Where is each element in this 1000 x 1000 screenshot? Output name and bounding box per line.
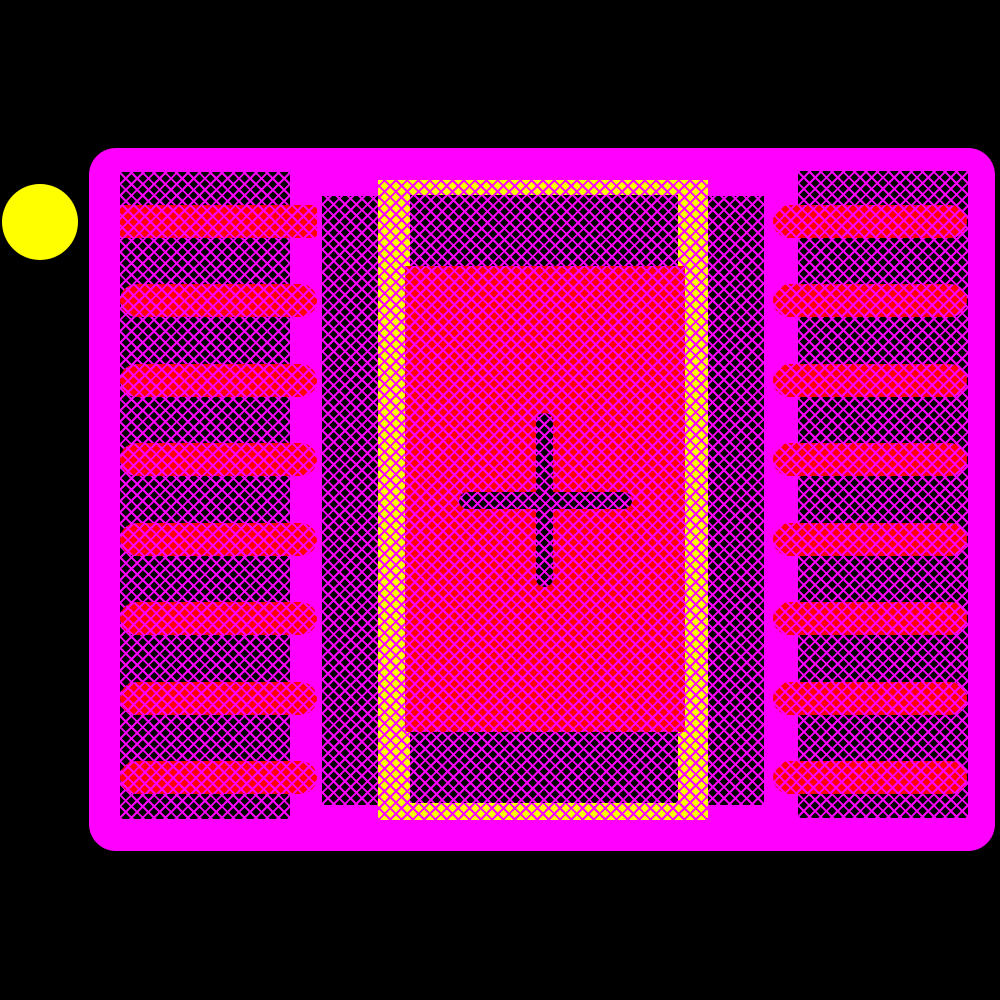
pad-right-5[interactable] [773, 523, 967, 556]
pad-right-3[interactable] [773, 364, 967, 397]
pad-left-5[interactable] [120, 523, 317, 556]
pad-left-1[interactable] [120, 205, 317, 238]
pad-left-2[interactable] [120, 284, 317, 317]
pad-right-6[interactable] [773, 602, 967, 635]
pad-left-3[interactable] [120, 364, 317, 397]
pin1-indicator[interactable] [2, 184, 78, 260]
footprint-canvas[interactable] [0, 0, 1000, 1000]
pad-left-8[interactable] [120, 761, 317, 794]
pad-left-4[interactable] [120, 443, 317, 476]
pad-right-8[interactable] [773, 761, 967, 794]
left-mask-region [120, 172, 290, 819]
pad-right-2[interactable] [773, 284, 967, 317]
right-mask-region [798, 171, 968, 818]
pad-right-4[interactable] [773, 443, 967, 476]
pad-left-6[interactable] [120, 602, 317, 635]
pad-left-7[interactable] [120, 682, 317, 715]
origin-cross-horizontal-icon [459, 492, 632, 509]
pad-right-1[interactable] [773, 205, 967, 238]
pad-right-7[interactable] [773, 682, 967, 715]
